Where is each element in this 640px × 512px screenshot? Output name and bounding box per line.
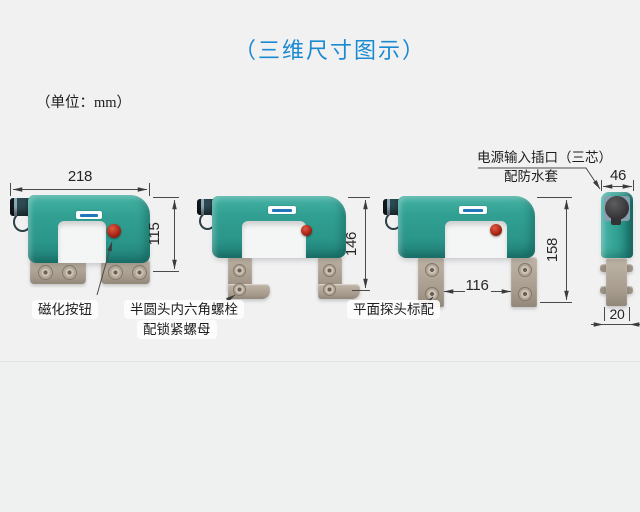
dim-side-width: 46 <box>602 169 634 183</box>
dim-height-flat: 158 <box>546 228 560 272</box>
dimension-diagram-page: （三维尺寸图示） （单位：mm） <box>0 0 640 512</box>
label-hex-bolt-line2: 配锁紧螺母 <box>137 320 217 339</box>
dim-height-articulated: 146 <box>345 222 359 266</box>
label-magnetize-button: 磁化按钮 <box>32 300 98 319</box>
dim-body-height: 115 <box>148 212 162 256</box>
dim-pole-thickness: 20 <box>604 307 630 321</box>
label-hex-bolt-line1: 半圆头内六角螺栓 <box>124 300 244 319</box>
label-power-socket-line1: 电源输入插口（三芯） <box>477 150 612 165</box>
dim-pole-gap: 116 <box>461 279 493 293</box>
dim-total-width: 218 <box>58 170 102 184</box>
label-power-socket-line2: 配防水套 <box>504 169 558 184</box>
label-flat-probe: 平面探头标配 <box>347 300 440 319</box>
